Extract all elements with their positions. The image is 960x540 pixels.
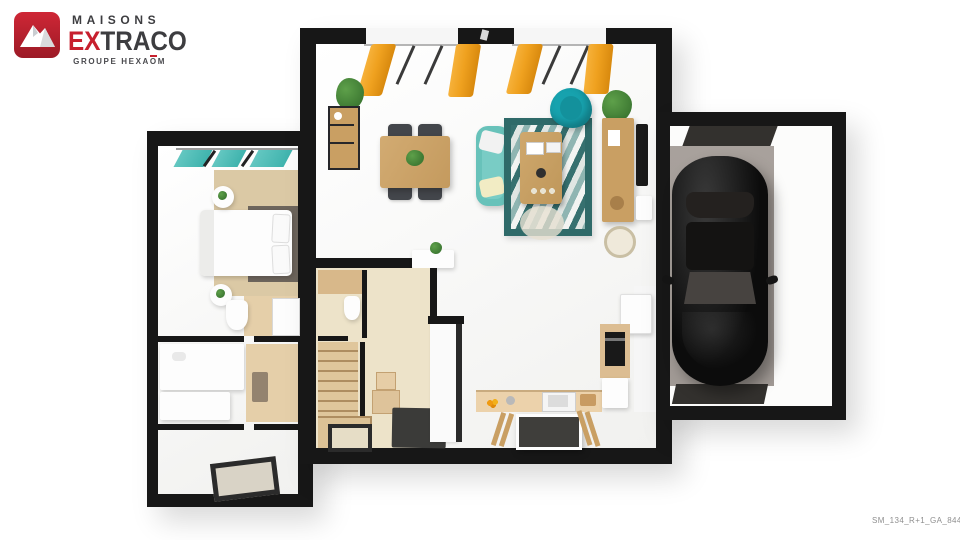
- wire-side-table: [520, 206, 564, 240]
- brand-group-o-macron: O: [150, 57, 158, 66]
- car-roof: [686, 222, 754, 270]
- basket: [604, 226, 636, 258]
- wc-toilet: [344, 296, 360, 320]
- canvas: MAISONS EXTRACO GROUPE HEXAOM: [0, 0, 960, 540]
- fruit-bowl: [486, 398, 500, 408]
- bathroom-lower-cabinet: [160, 392, 230, 420]
- tv-console-bowl: [610, 196, 624, 210]
- staircase-rail: [360, 342, 365, 416]
- tv-console-paper: [608, 130, 620, 146]
- plan-reference: SM_134_R+1_GA_84459: [872, 516, 960, 525]
- kettle: [506, 396, 515, 405]
- media-unit: [636, 196, 652, 220]
- brand-name-traco: TRACO: [100, 26, 186, 56]
- wc-room-floor: [318, 270, 364, 294]
- wc-wall-bottom: [318, 336, 348, 341]
- living-window-1: [366, 28, 458, 44]
- bathroom-door: [272, 298, 300, 336]
- coffee-table-book-2: [546, 142, 561, 153]
- bathroom-towel: [252, 372, 268, 402]
- ladder-shelf-line-1: [330, 124, 354, 126]
- coffee-table-book-1: [526, 142, 544, 155]
- ladder-shelf-decor: [334, 112, 342, 120]
- bathroom-partition-wall-right: [254, 336, 298, 342]
- brand-group-prefix: GROUPE: [73, 57, 117, 66]
- hall-wall-stub: [430, 268, 437, 322]
- brand-name-extraco: EXTRACO: [68, 27, 187, 55]
- bathroom-partition-wall-left: [158, 336, 244, 342]
- car-rear-window: [686, 192, 754, 218]
- kitchen-island: [516, 414, 582, 450]
- car-windshield: [684, 272, 756, 304]
- wc-wall-right: [362, 270, 367, 338]
- oven-handle: [605, 338, 625, 341]
- bathroom-vanity: [160, 344, 244, 390]
- toilet: [226, 300, 248, 330]
- brand-name-maisons: MAISONS: [72, 13, 200, 27]
- mountain-logo-icon: [14, 12, 60, 58]
- brand-logo-text: MAISONS EXTRACO GROUPE HEXAOM: [68, 12, 200, 66]
- armchair-seat: [560, 96, 582, 120]
- bed-duvet-fold: [200, 210, 214, 276]
- garage-shadow-strip-top: [682, 126, 777, 146]
- kitchen-sink-basin: [548, 395, 568, 407]
- hall-kitchen-divider-cap: [428, 316, 464, 324]
- brand-group-line: GROUPE HEXAOM: [68, 57, 166, 66]
- hall-wall-horizontal: [312, 258, 412, 268]
- staircase-flight: [318, 342, 358, 416]
- curtain-2-right: [583, 44, 613, 94]
- ladder-shelf-line-2: [330, 142, 354, 144]
- cutting-board: [580, 394, 596, 406]
- hall-kitchen-divider-face: [456, 320, 462, 442]
- moving-box-small: [376, 372, 396, 390]
- bed-pillow-top: [271, 214, 290, 244]
- brand-logo: MAISONS EXTRACO GROUPE HEXAOM: [14, 12, 200, 66]
- skylight-window: [210, 456, 280, 502]
- tv-screen: [636, 124, 648, 186]
- brand-group-m: M: [158, 57, 166, 66]
- attic-partition-wall-right: [254, 424, 298, 430]
- bathroom-sink: [172, 352, 186, 361]
- hall-kitchen-divider: [430, 320, 456, 442]
- garage-shadow-strip-bottom: [672, 384, 768, 404]
- attic-partition-wall-left: [158, 424, 244, 430]
- floor-hatch: [328, 424, 372, 452]
- coffee-table-decor: [536, 168, 546, 178]
- brand-name-ex: EX: [68, 26, 100, 56]
- bed-pillow-bottom: [271, 245, 290, 275]
- kitchen-drawer-unit: [602, 378, 628, 408]
- coffee-table-candles: [530, 188, 556, 194]
- living-window-2: [514, 28, 606, 44]
- brand-group-hexa: HEXA: [121, 57, 150, 66]
- ladder-shelf: [328, 106, 360, 170]
